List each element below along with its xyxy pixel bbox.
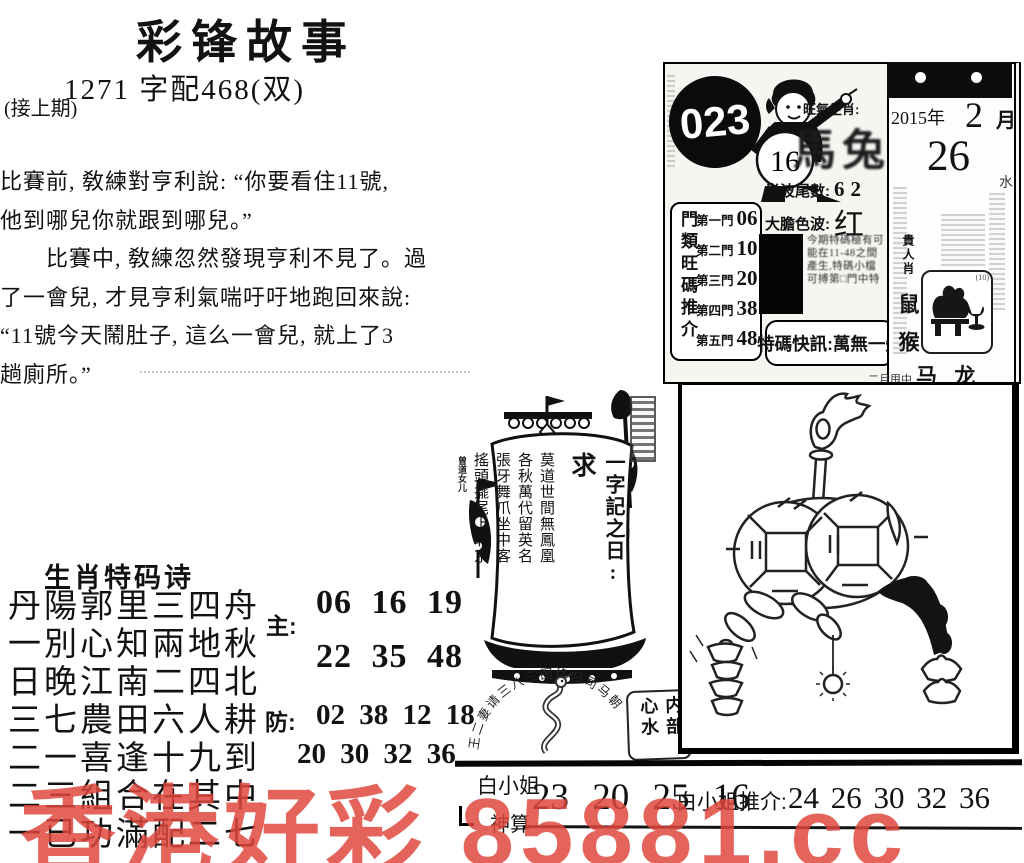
- sail-poem-line: 莫道世間無鳳凰: [536, 452, 557, 638]
- sail-signature: 曾道女儿: [456, 456, 469, 638]
- poem-line: 日晚江南二四北: [8, 664, 260, 702]
- calendar-month: 2: [965, 94, 983, 136]
- poem-line: 丹陽郭里三四舟: [8, 588, 260, 626]
- scan-smudge: [941, 214, 985, 266]
- half-wave-label: 半波尾數:: [765, 183, 830, 200]
- main-numbers-label: 主:: [266, 607, 297, 641]
- riddle-illustration: [682, 385, 1008, 742]
- story-line: 趟廁所。”: [0, 356, 462, 395]
- main-numbers-row1: 06 16 19: [316, 584, 463, 622]
- stamp-silhouettes: [923, 272, 987, 348]
- riddle-answer: 求: [568, 452, 595, 479]
- sail-poem-line: 張牙舞爪坐中客: [492, 452, 513, 638]
- guard-numbers-row1: 02 38 12 18: [316, 699, 475, 732]
- sail-text: 一字記之日:求 莫道世間無鳳凰 各秋萬代留英名 張牙舞爪坐中客 搖頭擺尾上北京 …: [496, 452, 628, 638]
- stamp-note: (10): [976, 273, 989, 282]
- story-line: 了一會兒, 才見亨利氣喘吁吁地跑回來說:: [0, 279, 462, 318]
- story-text: 比賽前, 敎練對亨利說: “你要看住11號, 他到哪兒你就跟到哪兒。” 比賽中,…: [0, 163, 462, 394]
- guard-numbers-label: 防:: [265, 703, 296, 737]
- riddle-figure-box: [678, 382, 1019, 754]
- calendar-side-character: 水: [999, 172, 1013, 192]
- gate-row: 第五門48: [696, 326, 758, 351]
- story-line: “11號今天鬧肚子, 這么一會兒, 就上了3: [0, 317, 462, 356]
- noble-label: 貴人肖: [901, 234, 915, 276]
- site-watermark: 香港好彩 85881.cc: [20, 754, 909, 863]
- gate-row: 第三門20: [696, 266, 758, 291]
- main-numbers-row2: 22 35 48: [316, 638, 463, 676]
- gates-recommendation-box: 門類旺碼推介 第一門06 第二門10 第三門20 第四門38 第五門48: [670, 202, 762, 361]
- hot-zodiac-characters: 馬兔: [793, 116, 891, 178]
- poem-line: 三七農田六人耕: [8, 702, 260, 740]
- issue-code: 1271 字配468(双): [64, 66, 305, 108]
- illegible-seal-cartouche: [630, 396, 656, 462]
- riddle-label: 一字記之日:: [602, 452, 624, 586]
- scan-artifact-line: [140, 371, 470, 373]
- lottery-info-panel: 023 16 旺氣生肖: 馬兔 半波尾數: 62 大膽色波:: [663, 62, 1021, 384]
- calendar-year: 2015年: [891, 104, 945, 130]
- special-number-notice: 今期特碼極有可能在11-48之間產生,特碼小檔可搏第□門中特: [807, 234, 887, 286]
- snake-drawing: [544, 674, 571, 752]
- zodiac-stamp-box: (10): [921, 270, 993, 354]
- binding-hole: [915, 72, 926, 83]
- calendar-binding-bar: [887, 62, 1012, 98]
- half-wave-value: 62: [834, 177, 867, 201]
- scanned-lottery-tip-sheet: 彩锋故事 1271 字配468(双) (接上期) 比賽前, 敎練對亨利說: “你…: [0, 0, 1024, 863]
- riddle-column: 一字記之日:求: [563, 452, 628, 638]
- noble-animal: 鼠: [893, 293, 923, 314]
- poem-line: 一別心知兩地秋: [8, 626, 260, 664]
- calendar-day: 26: [927, 132, 970, 181]
- continued-note: (接上期): [4, 92, 77, 121]
- arc-seal: 王二妻请三八三图终归司马朝: [468, 662, 640, 762]
- sail-poem-line: 各秋萬代留英名: [514, 452, 535, 638]
- story-line: 比賽中, 敎練忽然發現亨利不見了。過: [0, 240, 462, 279]
- page-title: 彩锋故事: [136, 6, 356, 72]
- sail-poem-line: 搖頭擺尾上北京: [470, 452, 491, 638]
- ship-illustration: 一字記之日:求 莫道世間無鳳凰 各秋萬代留英名 張牙舞爪坐中客 搖頭擺尾上北京 …: [462, 388, 665, 690]
- calendar-month-unit: 月: [996, 104, 1016, 133]
- story-line: 比賽前, 敎練對亨利說: “你要看住11號,: [0, 163, 462, 202]
- color-wave-label: 大膽色波:: [765, 216, 830, 233]
- gate-row: 第二門10: [696, 236, 758, 261]
- half-wave-row: 半波尾數: 62: [765, 177, 867, 202]
- story-line: 他到哪兒你就跟到哪兒。”: [0, 202, 462, 241]
- gate-row: 第四門38: [696, 296, 758, 321]
- noble-animal: 猴: [893, 331, 923, 352]
- redacted-black-box: [759, 234, 803, 314]
- gate-row: 第一門06: [696, 206, 758, 231]
- binding-hole: [971, 72, 982, 83]
